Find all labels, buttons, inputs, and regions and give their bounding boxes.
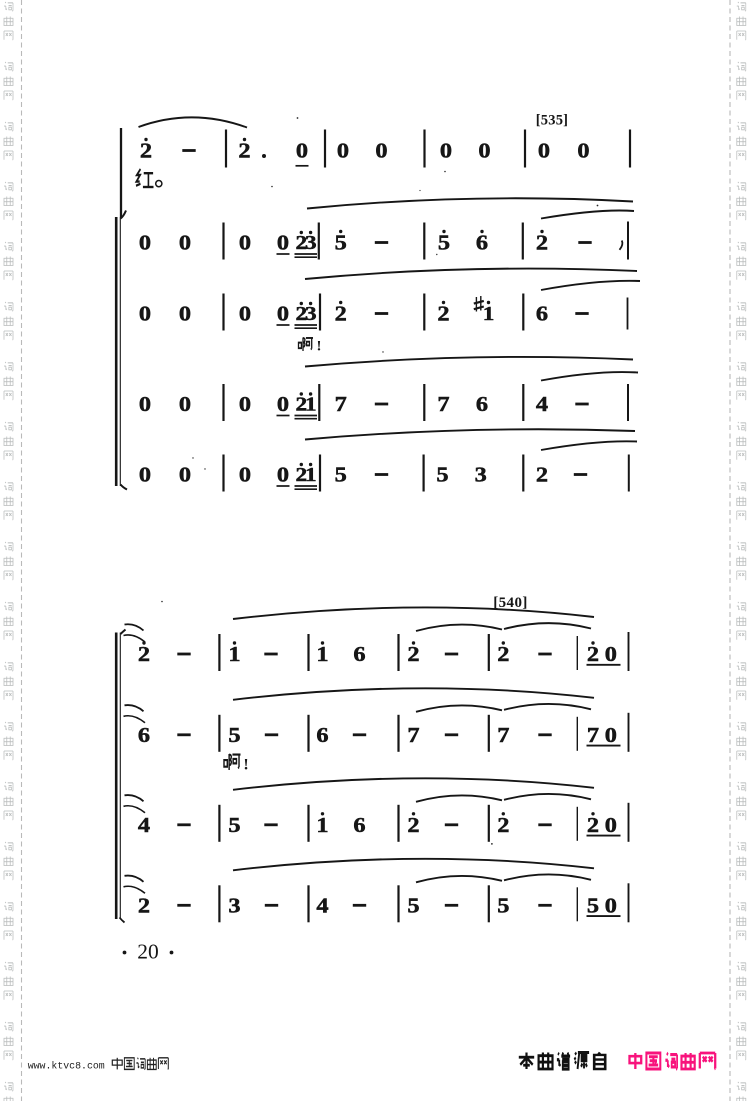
- svg-text:5: 5: [436, 463, 448, 486]
- svg-text:3: 3: [305, 232, 317, 254]
- svg-text:0: 0: [239, 302, 251, 325]
- svg-text:0: 0: [139, 302, 151, 325]
- svg-text:0: 0: [277, 302, 289, 325]
- svg-text:0: 0: [605, 894, 617, 917]
- svg-text:5: 5: [438, 231, 450, 254]
- svg-text:2: 2: [407, 643, 419, 666]
- svg-text:0: 0: [538, 139, 550, 162]
- svg-text:0: 0: [375, 139, 387, 162]
- svg-text:3: 3: [475, 463, 487, 486]
- svg-text:2: 2: [407, 813, 419, 836]
- svg-text:6: 6: [536, 302, 548, 325]
- svg-text:0: 0: [605, 723, 617, 746]
- svg-text:1: 1: [316, 643, 328, 666]
- svg-text:0: 0: [239, 231, 251, 254]
- svg-text:1: 1: [483, 303, 495, 325]
- svg-text:0: 0: [179, 231, 191, 254]
- svg-text:5: 5: [335, 463, 347, 486]
- svg-text:0: 0: [605, 813, 617, 836]
- svg-text:0: 0: [478, 139, 490, 162]
- svg-text:6: 6: [353, 643, 365, 666]
- svg-text:7: 7: [587, 723, 599, 746]
- svg-text:3: 3: [305, 303, 317, 325]
- svg-text:0: 0: [440, 139, 452, 162]
- svg-text:!: !: [317, 339, 322, 355]
- svg-text:2: 2: [536, 231, 548, 254]
- svg-text:5: 5: [587, 894, 599, 917]
- svg-text:2: 2: [497, 813, 509, 836]
- svg-text:4: 4: [316, 894, 328, 917]
- svg-text:0: 0: [179, 463, 191, 486]
- svg-text:7: 7: [407, 723, 419, 746]
- svg-text:2: 2: [138, 894, 150, 917]
- svg-text:4: 4: [138, 813, 150, 836]
- svg-text:7: 7: [497, 723, 509, 746]
- svg-text:www.ktvc8.com: www.ktvc8.com: [28, 1060, 105, 1071]
- svg-text:2: 2: [497, 643, 509, 666]
- svg-text:20: 20: [137, 940, 159, 964]
- svg-text:5: 5: [407, 894, 419, 917]
- svg-text:2: 2: [140, 139, 152, 162]
- svg-text:7: 7: [437, 393, 449, 416]
- svg-text:0: 0: [239, 463, 251, 486]
- svg-text:6: 6: [316, 723, 328, 746]
- svg-text:6: 6: [476, 393, 488, 416]
- svg-text:2: 2: [536, 463, 548, 486]
- svg-text:0: 0: [139, 231, 151, 254]
- svg-text:0: 0: [296, 139, 308, 162]
- svg-text:1: 1: [305, 393, 317, 415]
- svg-text:5: 5: [228, 813, 240, 836]
- svg-text:1: 1: [228, 643, 240, 666]
- svg-text:1: 1: [316, 813, 328, 836]
- svg-text:7: 7: [335, 393, 347, 416]
- svg-text:0: 0: [277, 393, 289, 416]
- svg-text:0: 0: [337, 139, 349, 162]
- svg-text:4: 4: [536, 393, 548, 416]
- svg-text:2: 2: [138, 643, 150, 666]
- svg-text:1: 1: [305, 464, 317, 486]
- svg-text:0: 0: [139, 463, 151, 486]
- svg-text:2: 2: [238, 139, 250, 162]
- svg-text:0: 0: [577, 139, 589, 162]
- svg-text:5: 5: [228, 723, 240, 746]
- svg-text:5: 5: [335, 231, 347, 254]
- svg-text:0: 0: [605, 643, 617, 666]
- svg-text:2: 2: [587, 643, 599, 666]
- svg-text:0: 0: [179, 393, 191, 416]
- svg-text:6: 6: [138, 723, 150, 746]
- svg-text:2: 2: [335, 302, 347, 325]
- svg-text:6: 6: [476, 231, 488, 254]
- svg-text:0: 0: [277, 231, 289, 254]
- svg-text:6: 6: [353, 813, 365, 836]
- svg-text:0: 0: [239, 393, 251, 416]
- svg-text:0: 0: [277, 463, 289, 486]
- svg-text:!: !: [243, 757, 248, 774]
- svg-text:5: 5: [497, 894, 509, 917]
- svg-text:2: 2: [587, 813, 599, 836]
- svg-text:2: 2: [437, 302, 449, 325]
- svg-text:0: 0: [139, 393, 151, 416]
- svg-text:3: 3: [228, 894, 240, 917]
- svg-text:[535]: [535]: [536, 113, 568, 129]
- svg-text:0: 0: [179, 302, 191, 325]
